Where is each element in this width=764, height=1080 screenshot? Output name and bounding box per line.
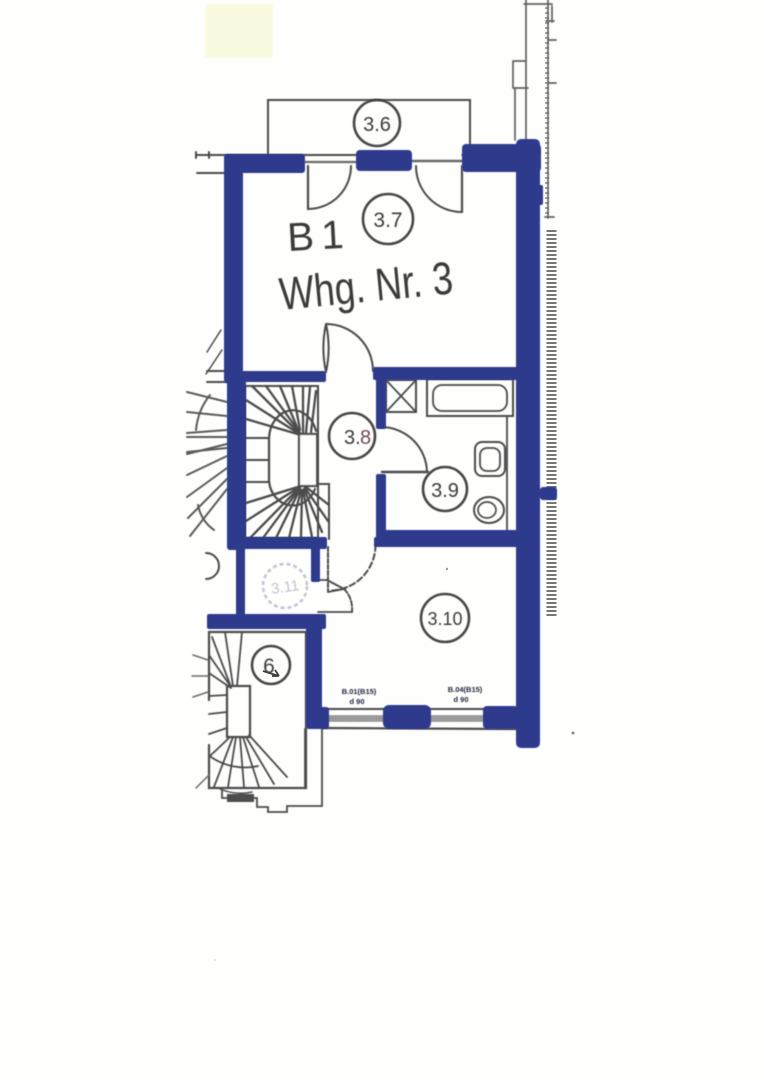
- svg-text:B: B: [286, 215, 315, 260]
- svg-text:3.7: 3.7: [373, 209, 402, 232]
- svg-text:d 90: d 90: [349, 697, 364, 706]
- svg-text:3.9: 3.9: [431, 480, 459, 502]
- svg-text:3.: 3.: [344, 427, 361, 449]
- svg-text:3.6: 3.6: [363, 114, 391, 136]
- svg-text:B.04(B15): B.04(B15): [448, 685, 483, 694]
- svg-text:B.01(B15): B.01(B15): [342, 687, 377, 696]
- svg-text:1: 1: [320, 213, 345, 258]
- svg-text:8: 8: [360, 427, 371, 449]
- svg-text:3.10: 3.10: [427, 609, 462, 629]
- svg-text:d 90: d 90: [453, 695, 468, 704]
